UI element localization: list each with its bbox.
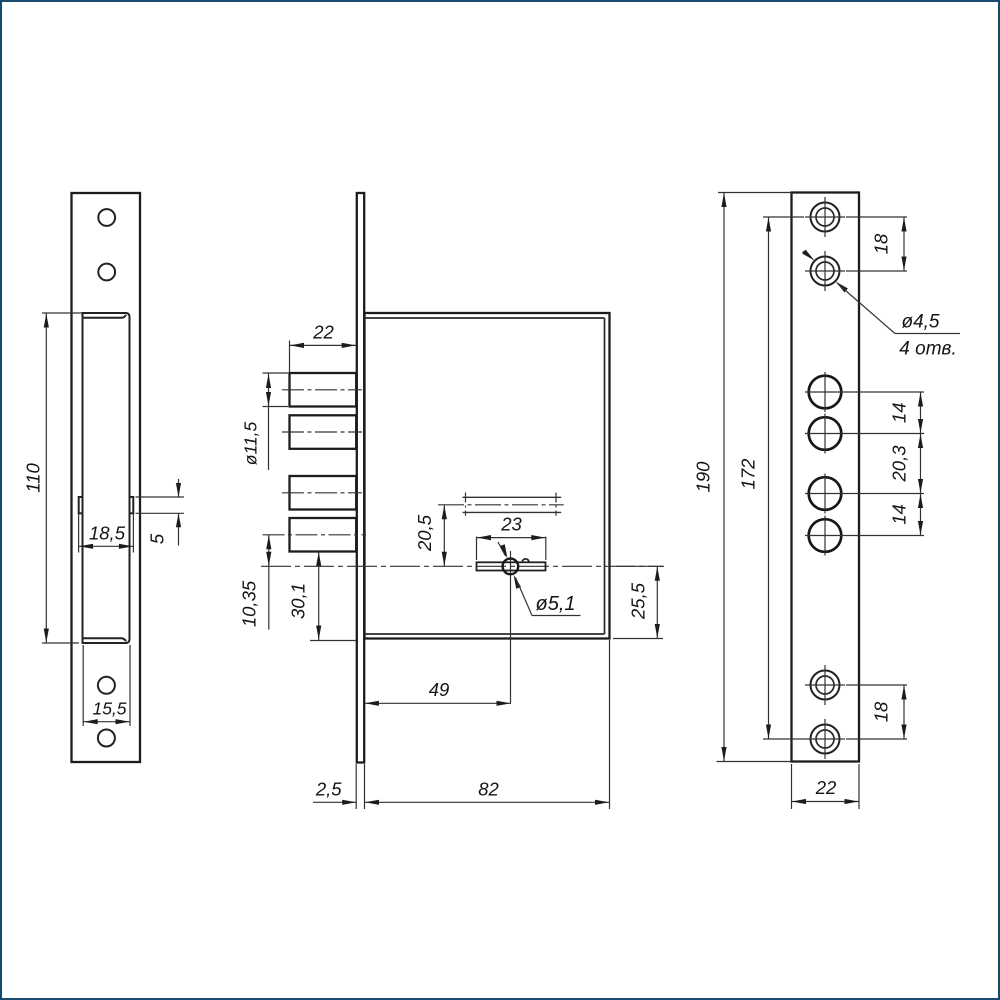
svg-text:18,5: 18,5: [89, 523, 126, 544]
svg-text:ø5,1: ø5,1: [535, 593, 575, 615]
svg-text:25,5: 25,5: [628, 582, 649, 620]
svg-text:14: 14: [889, 403, 910, 424]
svg-text:10,35: 10,35: [239, 580, 260, 627]
svg-text:110: 110: [23, 463, 44, 493]
svg-text:190: 190: [693, 461, 714, 493]
svg-text:49: 49: [429, 679, 450, 700]
svg-text:ø11,5: ø11,5: [241, 422, 261, 466]
svg-text:172: 172: [738, 458, 759, 490]
svg-text:18: 18: [871, 233, 892, 254]
svg-text:22: 22: [312, 322, 334, 343]
svg-text:2,5: 2,5: [315, 779, 342, 800]
svg-text:14: 14: [889, 504, 910, 525]
svg-text:15,5: 15,5: [92, 699, 126, 719]
svg-text:20,5: 20,5: [414, 514, 435, 552]
svg-text:82: 82: [478, 779, 499, 800]
svg-text:22: 22: [815, 777, 837, 798]
svg-text:4 отв.: 4 отв.: [899, 339, 956, 360]
svg-text:20,3: 20,3: [889, 445, 910, 483]
svg-text:ø4,5: ø4,5: [901, 312, 939, 333]
svg-text:23: 23: [500, 514, 522, 535]
svg-text:18: 18: [871, 701, 892, 722]
svg-text:30,1: 30,1: [288, 583, 309, 619]
svg-text:5: 5: [147, 533, 168, 544]
